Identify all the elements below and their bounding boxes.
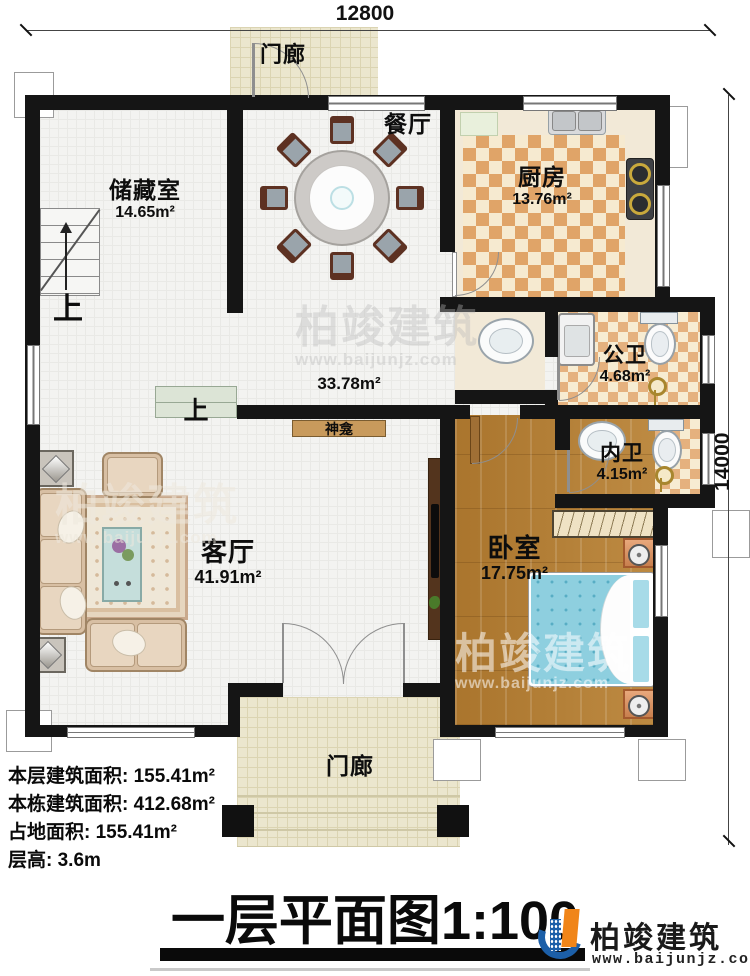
coffee-table [102, 527, 142, 602]
porch-steps [237, 795, 460, 847]
wall-kitchen-south [440, 297, 715, 312]
public-bath-label: 公卫 4.68m² [585, 344, 665, 385]
lamp [628, 695, 650, 717]
stat-row: 本层建筑面积: 155.41m² [8, 763, 215, 791]
floor-plan-canvas: 12800 14000 [0, 0, 750, 976]
private-bath-label: 内卫 4.15m² [582, 442, 662, 483]
stat-label: 本栋建筑面积: [8, 794, 128, 815]
wall-alcove-east [545, 312, 558, 357]
dining-chair [260, 186, 288, 210]
window-bedroom-east [655, 545, 668, 617]
porch-column [222, 805, 254, 837]
window-storage-left [27, 345, 40, 425]
stove [626, 158, 654, 220]
shrine-shelf: 神龛 [292, 420, 386, 437]
room-name: 公卫 [585, 344, 665, 368]
wall-alcove-south [455, 390, 558, 404]
title-underline-thin [150, 968, 590, 971]
window-bedroom-south [495, 727, 625, 738]
side-table-top [42, 454, 70, 482]
stat-value: 155.41m² [96, 822, 177, 843]
stair-arrow [65, 232, 67, 290]
stat-label: 层高: [8, 850, 52, 871]
room-area: 41.91m² [163, 567, 293, 587]
wall-living-south-e2 [403, 683, 440, 697]
brand-website: www.baijunjz.com [592, 951, 750, 968]
kitchen-sink [548, 107, 606, 135]
window-kitchen-right [657, 185, 670, 287]
storage-label: 储藏室 14.65m² [85, 178, 205, 222]
stat-value: 412.68m² [134, 794, 215, 815]
wall-alcove-east2 [545, 400, 558, 405]
burner [629, 193, 651, 215]
burner [629, 163, 651, 185]
dim-tick [723, 835, 736, 848]
room-name: 厨房 [482, 165, 602, 191]
title-underline [160, 948, 585, 961]
room-area: 4.15m² [582, 466, 662, 484]
sink-basin [552, 111, 576, 131]
nightstand [623, 689, 655, 719]
wall-bath-south [555, 494, 715, 508]
flower-decor [122, 549, 134, 561]
wall-privbath-west [555, 419, 570, 450]
stairs-up-label-2: 上 [178, 397, 214, 425]
window-kitchen-top [523, 96, 617, 111]
pillar [712, 510, 750, 558]
shrine-label: 神龛 [325, 421, 353, 437]
porch-bottom-label: 门廊 [308, 754, 392, 780]
room-area: 17.75m² [452, 563, 577, 583]
wall-bath-divider [520, 405, 715, 419]
sink-basin [578, 111, 602, 131]
room-name: 门廊 [308, 754, 392, 780]
porch-column [437, 805, 469, 837]
stat-value: 155.41m² [134, 766, 215, 787]
wall-living-south-e1 [240, 683, 283, 697]
table-dot [126, 581, 131, 586]
room-area: 33.78m² [301, 374, 397, 393]
logo-building-blue-icon [550, 919, 561, 951]
nightstand [623, 538, 655, 568]
stat-label: 本层建筑面积: [8, 766, 128, 787]
brand-logo: 柏竣建筑 www.baijunjz.com [538, 905, 748, 975]
window-living-south [67, 727, 195, 738]
lamp [628, 544, 650, 566]
living-label: 客厅 41.91m² [163, 538, 293, 587]
side-table [38, 450, 74, 487]
wall-bedroom-east [653, 508, 668, 737]
stat-row: 占地面积: 155.41m² [8, 819, 215, 847]
room-name: 餐厅 [370, 112, 446, 138]
refrigerator [460, 112, 498, 136]
stat-row: 本栋建筑面积: 412.68m² [8, 791, 215, 819]
dining-chair [330, 252, 354, 280]
porch-top-label: 门廊 [243, 43, 323, 68]
dining-label: 餐厅 [370, 112, 446, 138]
plan-title-text: 一层平面图 [171, 891, 441, 951]
room-name: 门廊 [243, 43, 323, 68]
lazy-susan [330, 186, 354, 210]
stat-value: 3.6m [58, 850, 101, 871]
top-dimension-line [26, 30, 710, 31]
wall-hall-living [237, 405, 470, 419]
hall-area-label: 33.78m² [301, 374, 397, 393]
room-area: 14.65m² [85, 204, 205, 222]
window-dining [328, 96, 425, 111]
tv [431, 504, 439, 578]
window-pubbath [702, 335, 715, 384]
dining-chair [330, 116, 354, 144]
table-dot [114, 581, 119, 586]
bedroom-label: 卧室 17.75m² [452, 534, 577, 583]
wall-storage-dining [227, 110, 243, 313]
kitchen-label: 厨房 13.76m² [482, 165, 602, 209]
drain-pipe [654, 390, 656, 405]
stat-row: 层高: 3.6m [8, 847, 215, 875]
stat-label: 占地面积: [8, 822, 90, 843]
pillar [638, 739, 686, 781]
room-area: 13.76m² [482, 191, 602, 209]
dining-chair [396, 186, 424, 210]
sofa-cushion [107, 457, 158, 493]
armchair [102, 452, 163, 498]
pillar [433, 739, 481, 781]
pillow [631, 634, 651, 684]
pillow [631, 578, 651, 630]
top-dimension-label: 12800 [295, 2, 435, 26]
room-name: 储藏室 [85, 178, 205, 204]
stairs-up-label: 上 [48, 293, 88, 327]
stats-block: 本层建筑面积: 155.41m² 本栋建筑面积: 412.68m² 占地面积: … [8, 763, 215, 875]
room-name: 客厅 [163, 538, 293, 567]
sofa-cushion [40, 539, 82, 583]
room-name: 卧室 [452, 534, 577, 563]
right-dimension-label: 14000 [711, 427, 735, 497]
stair-arrow-head [60, 222, 72, 233]
dim-tick [723, 88, 736, 101]
room-area: 4.68m² [585, 368, 665, 386]
wash-basin [478, 318, 534, 364]
room-name: 内卫 [582, 442, 662, 466]
